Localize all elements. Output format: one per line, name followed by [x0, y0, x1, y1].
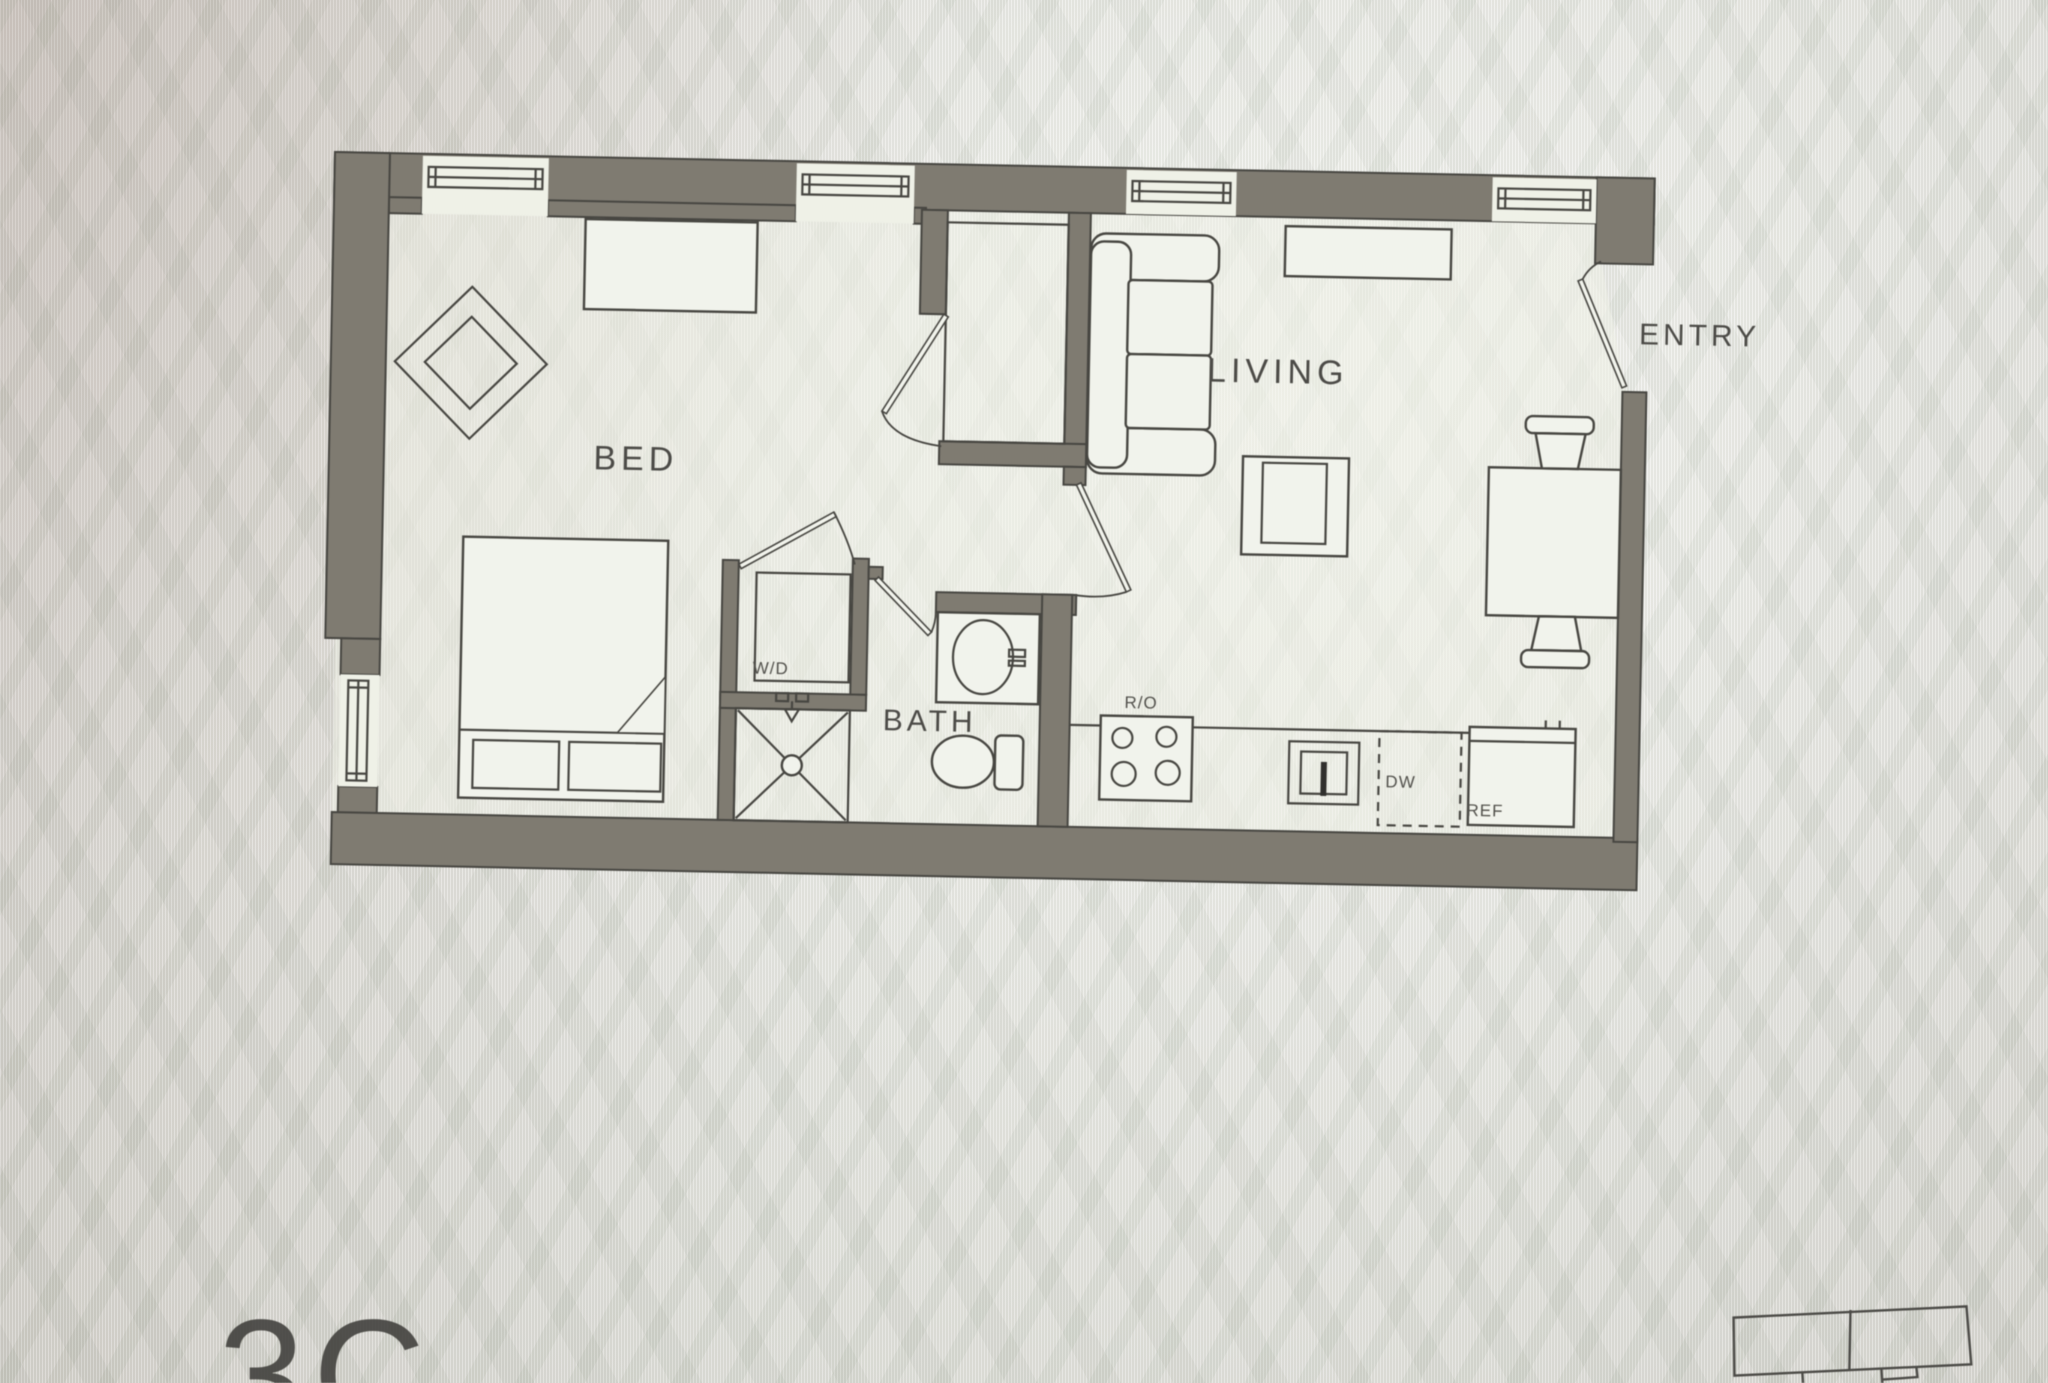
- entry-label: ENTRY: [1639, 318, 1761, 353]
- unit-plan: BED LIVING ENTRY BATH W/D R/O DW REF: [321, 152, 1764, 893]
- toilet: [931, 734, 1023, 790]
- dresser: [584, 219, 758, 312]
- floor-plan-photo: BED LIVING ENTRY BATH W/D R/O DW REF 3C: [0, 0, 2048, 1383]
- key-plan: [1733, 1306, 1971, 1383]
- washer-dryer-label: W/D: [753, 658, 789, 678]
- coffee-table: [1241, 456, 1349, 556]
- range-oven: [1099, 715, 1193, 801]
- unit-number: 3C: [218, 1288, 433, 1383]
- window-bed-1: [422, 156, 549, 217]
- bed-label: BED: [593, 439, 679, 479]
- floor-plan-canvas: BED LIVING ENTRY BATH W/D R/O DW REF 3C: [0, 0, 2048, 1383]
- bed: [458, 537, 668, 802]
- living-label: LIVING: [1207, 352, 1349, 393]
- sofa: [1087, 233, 1220, 476]
- vanity-sink: [936, 612, 1040, 704]
- window-living-1: [1126, 170, 1237, 216]
- window-bed-side: [338, 674, 379, 787]
- range-oven-label: R/O: [1124, 693, 1158, 713]
- dishwasher-label: DW: [1385, 772, 1416, 792]
- refrigerator-label: REF: [1466, 801, 1503, 821]
- window-living-2: [1492, 177, 1597, 223]
- dining-table: [1486, 467, 1621, 618]
- media-console: [1285, 226, 1452, 279]
- window-bed-2: [796, 163, 915, 223]
- bath-label: BATH: [882, 704, 976, 739]
